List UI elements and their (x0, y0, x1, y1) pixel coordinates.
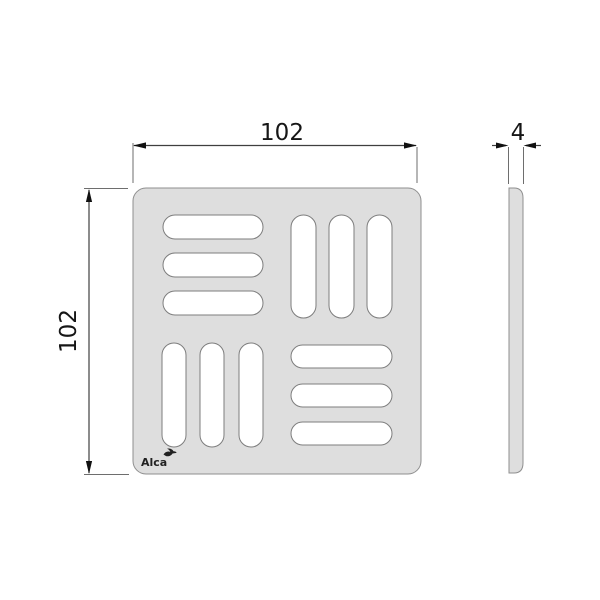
arrowhead-right-icon (496, 143, 509, 149)
grate-slot (200, 343, 224, 447)
grate-slot (291, 422, 392, 445)
left-height-label: 102 (56, 309, 82, 353)
grate-slot (163, 253, 263, 277)
front-view-grate: Alca (133, 188, 421, 474)
left-height-dimension: 102 (56, 189, 129, 475)
grate-slot (291, 215, 316, 318)
top-width-dimension: 102 (133, 120, 417, 183)
logo-text: Alca (141, 456, 167, 469)
top-width-label: 102 (260, 120, 304, 146)
grate-slot (163, 215, 263, 239)
grate-slot (329, 215, 354, 318)
technical-drawing-canvas: 102 102 (0, 0, 600, 600)
arrowhead-left-icon (524, 143, 537, 149)
side-view-plate (509, 188, 523, 473)
drain-grate-drawing: 102 102 (0, 0, 600, 600)
grate-slot (163, 291, 263, 315)
grate-slot (367, 215, 392, 318)
thickness-label: 4 (511, 120, 526, 146)
arrowhead-right-icon (404, 142, 417, 148)
grate-slot (291, 345, 392, 368)
arrowhead-left-icon (133, 142, 146, 148)
grate-slot (291, 384, 392, 407)
arrowhead-up-icon (86, 189, 92, 202)
thickness-dimension: 4 (492, 120, 541, 184)
plate-body (509, 188, 523, 473)
grate-slot (162, 343, 186, 447)
grate-slot (239, 343, 263, 447)
arrowhead-down-icon (86, 461, 92, 474)
